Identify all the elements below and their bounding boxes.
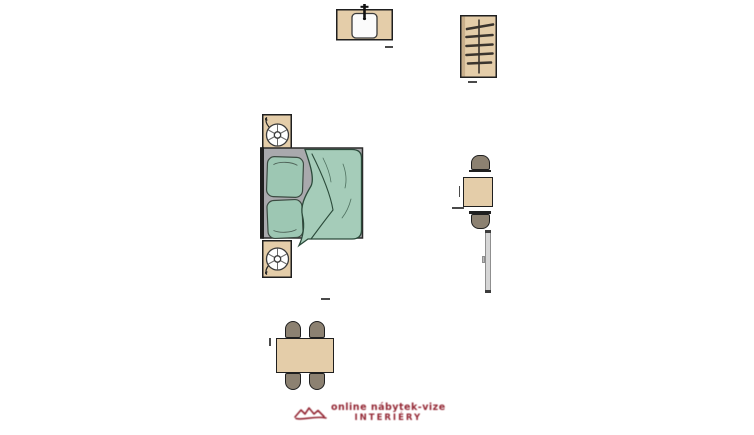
watermark-line1: online nábytek-vize: [331, 402, 446, 413]
watermark-line2: INTERIÉRY: [355, 413, 423, 423]
side-chair-top: [471, 155, 490, 170]
dining-table: [276, 338, 334, 373]
dining-chair-4: [309, 373, 325, 390]
radiator: [485, 231, 491, 292]
radiator-cap-top: [485, 230, 492, 233]
side-table: [463, 177, 493, 207]
wardrobe-hangers-icon: [460, 15, 497, 78]
double-bed: [255, 144, 369, 254]
radiator-cap-bottom: [485, 290, 492, 293]
dining-chair-3: [285, 373, 301, 390]
wall-mark: [321, 298, 330, 300]
lamp-icon: [262, 240, 292, 278]
wall-mark: [269, 338, 271, 346]
wall-mark: [459, 186, 461, 197]
watermark-logo-icon: [294, 405, 328, 421]
watermark-text: online nábytek-vize INTERIÉRY: [331, 402, 446, 423]
watermark: online nábytek-vize INTERIÉRY: [294, 402, 446, 423]
wall-mark: [385, 46, 393, 48]
floorplan-canvas: online nábytek-vize INTERIÉRY: [0, 0, 754, 435]
radiator-valve: [482, 256, 485, 263]
bed-icon: [255, 144, 369, 250]
dining-chair-1: [285, 321, 301, 338]
side-chair-bottom: [471, 214, 490, 229]
nightstand-bottom: [262, 240, 292, 282]
wall-mark: [452, 207, 464, 209]
side-chair-top-base: [469, 170, 491, 173]
wall-mark: [468, 81, 477, 83]
dining-chair-2: [309, 321, 325, 338]
sink-unit: [336, 4, 393, 45]
wardrobe: [460, 15, 497, 82]
sink-icon: [336, 4, 393, 41]
